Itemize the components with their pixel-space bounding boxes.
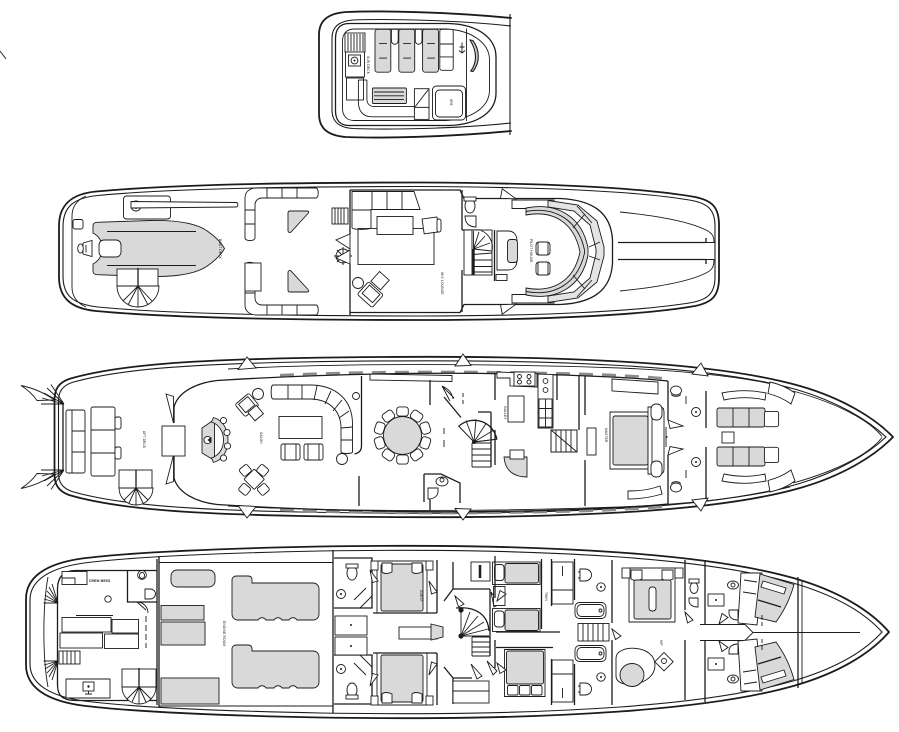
svg-text:MASTER: MASTER <box>604 428 608 443</box>
svg-text:SKY LOUNGE: SKY LOUNGE <box>440 272 444 295</box>
svg-text:TWIN: TWIN <box>544 592 548 601</box>
svg-text:SPA: SPA <box>449 99 453 106</box>
svg-text:CREW MESS: CREW MESS <box>89 579 110 583</box>
svg-text:SALON: SALON <box>259 432 263 444</box>
svg-text:GUEST: GUEST <box>419 590 423 602</box>
svg-text:AFT DECK: AFT DECK <box>142 431 146 449</box>
svg-text:SUN DECK: SUN DECK <box>366 56 370 75</box>
svg-text:BOAT DECK: BOAT DECK <box>218 239 222 260</box>
svg-text:ENGINE ROOM: ENGINE ROOM <box>222 621 226 646</box>
svg-text:GALLEY: GALLEY <box>503 406 507 420</box>
svg-text:VIP: VIP <box>659 640 663 646</box>
svg-text:PILOT HOUSE: PILOT HOUSE <box>529 239 533 263</box>
